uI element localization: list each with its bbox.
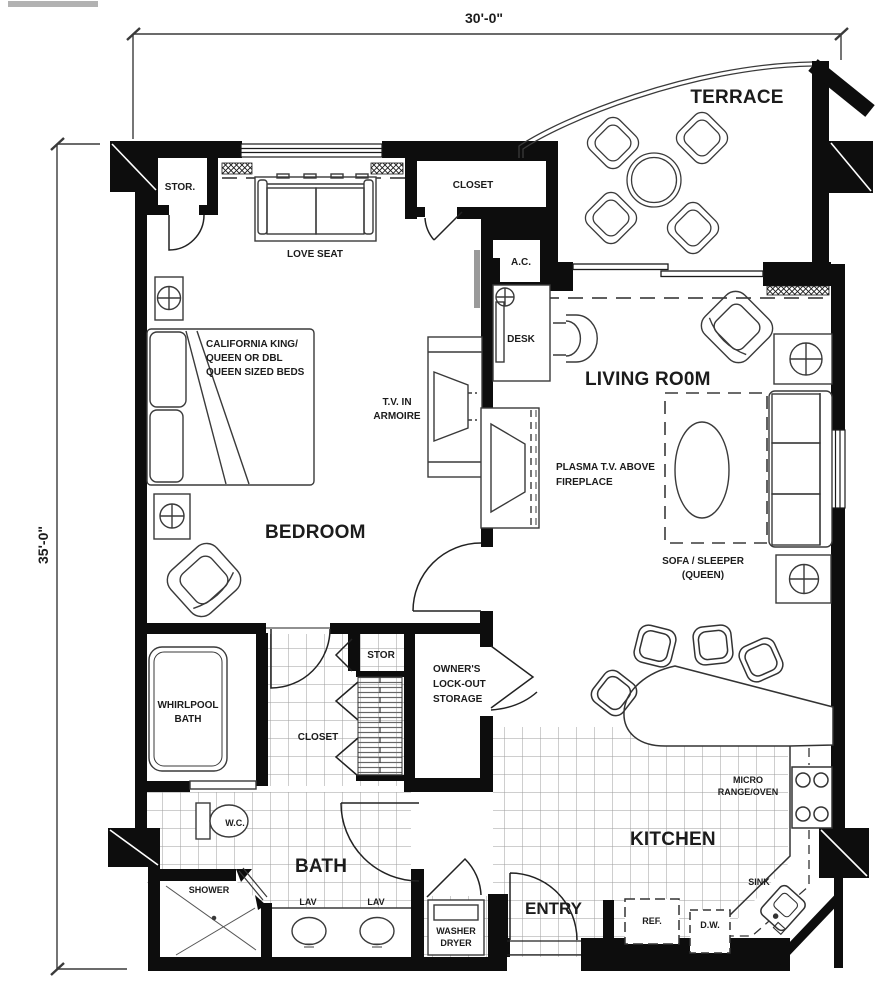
svg-text:W.C.: W.C. [225, 818, 245, 828]
svg-text:SHOWER: SHOWER [189, 885, 230, 895]
svg-text:LIVING RO0M: LIVING RO0M [585, 369, 711, 390]
svg-text:CLOSET: CLOSET [453, 180, 494, 191]
svg-text:WASHER: WASHER [436, 926, 476, 936]
svg-text:(QUEEN): (QUEEN) [682, 570, 724, 581]
svg-text:SOFA / SLEEPER: SOFA / SLEEPER [662, 556, 745, 567]
svg-text:A.C.: A.C. [511, 257, 531, 268]
svg-text:BEDROOM: BEDROOM [265, 522, 366, 543]
svg-text:PLASMA T.V. ABOVE: PLASMA T.V. ABOVE [556, 462, 655, 473]
svg-text:T.V. IN: T.V. IN [382, 397, 411, 408]
svg-text:D.W.: D.W. [700, 920, 720, 930]
svg-text:QUEEN SIZED BEDS: QUEEN SIZED BEDS [206, 367, 305, 378]
svg-text:WHIRLPOOL: WHIRLPOOL [157, 700, 218, 711]
svg-text:STOR: STOR [367, 650, 395, 661]
svg-text:BATH: BATH [174, 714, 201, 725]
svg-text:35'-0": 35'-0" [35, 526, 51, 564]
svg-text:SINK: SINK [748, 877, 770, 887]
svg-text:FIREPLACE: FIREPLACE [556, 477, 613, 488]
svg-text:STORAGE: STORAGE [433, 694, 483, 705]
svg-text:DRYER: DRYER [440, 938, 472, 948]
svg-text:LAV: LAV [367, 897, 384, 907]
svg-text:MICRO: MICRO [733, 775, 763, 785]
svg-text:REF.: REF. [642, 916, 662, 926]
svg-text:TERRACE: TERRACE [690, 87, 783, 108]
svg-text:ARMOIRE: ARMOIRE [373, 411, 421, 422]
svg-text:OWNER'S: OWNER'S [433, 664, 481, 675]
svg-text:QUEEN OR DBL: QUEEN OR DBL [206, 353, 283, 364]
svg-text:CLOSET: CLOSET [298, 732, 339, 743]
svg-text:30'-0": 30'-0" [465, 10, 503, 26]
svg-text:STOR.: STOR. [165, 182, 196, 193]
svg-text:KITCHEN: KITCHEN [630, 829, 716, 850]
svg-text:ENTRY: ENTRY [525, 899, 583, 918]
svg-text:LOVE SEAT: LOVE SEAT [287, 249, 343, 260]
svg-text:BATH: BATH [295, 856, 347, 877]
svg-text:RANGE/OVEN: RANGE/OVEN [718, 787, 779, 797]
svg-text:LAV: LAV [299, 897, 316, 907]
svg-text:CALIFORNIA KING/: CALIFORNIA KING/ [206, 339, 298, 350]
svg-text:DESK: DESK [507, 334, 536, 345]
svg-text:LOCK-OUT: LOCK-OUT [433, 679, 486, 690]
